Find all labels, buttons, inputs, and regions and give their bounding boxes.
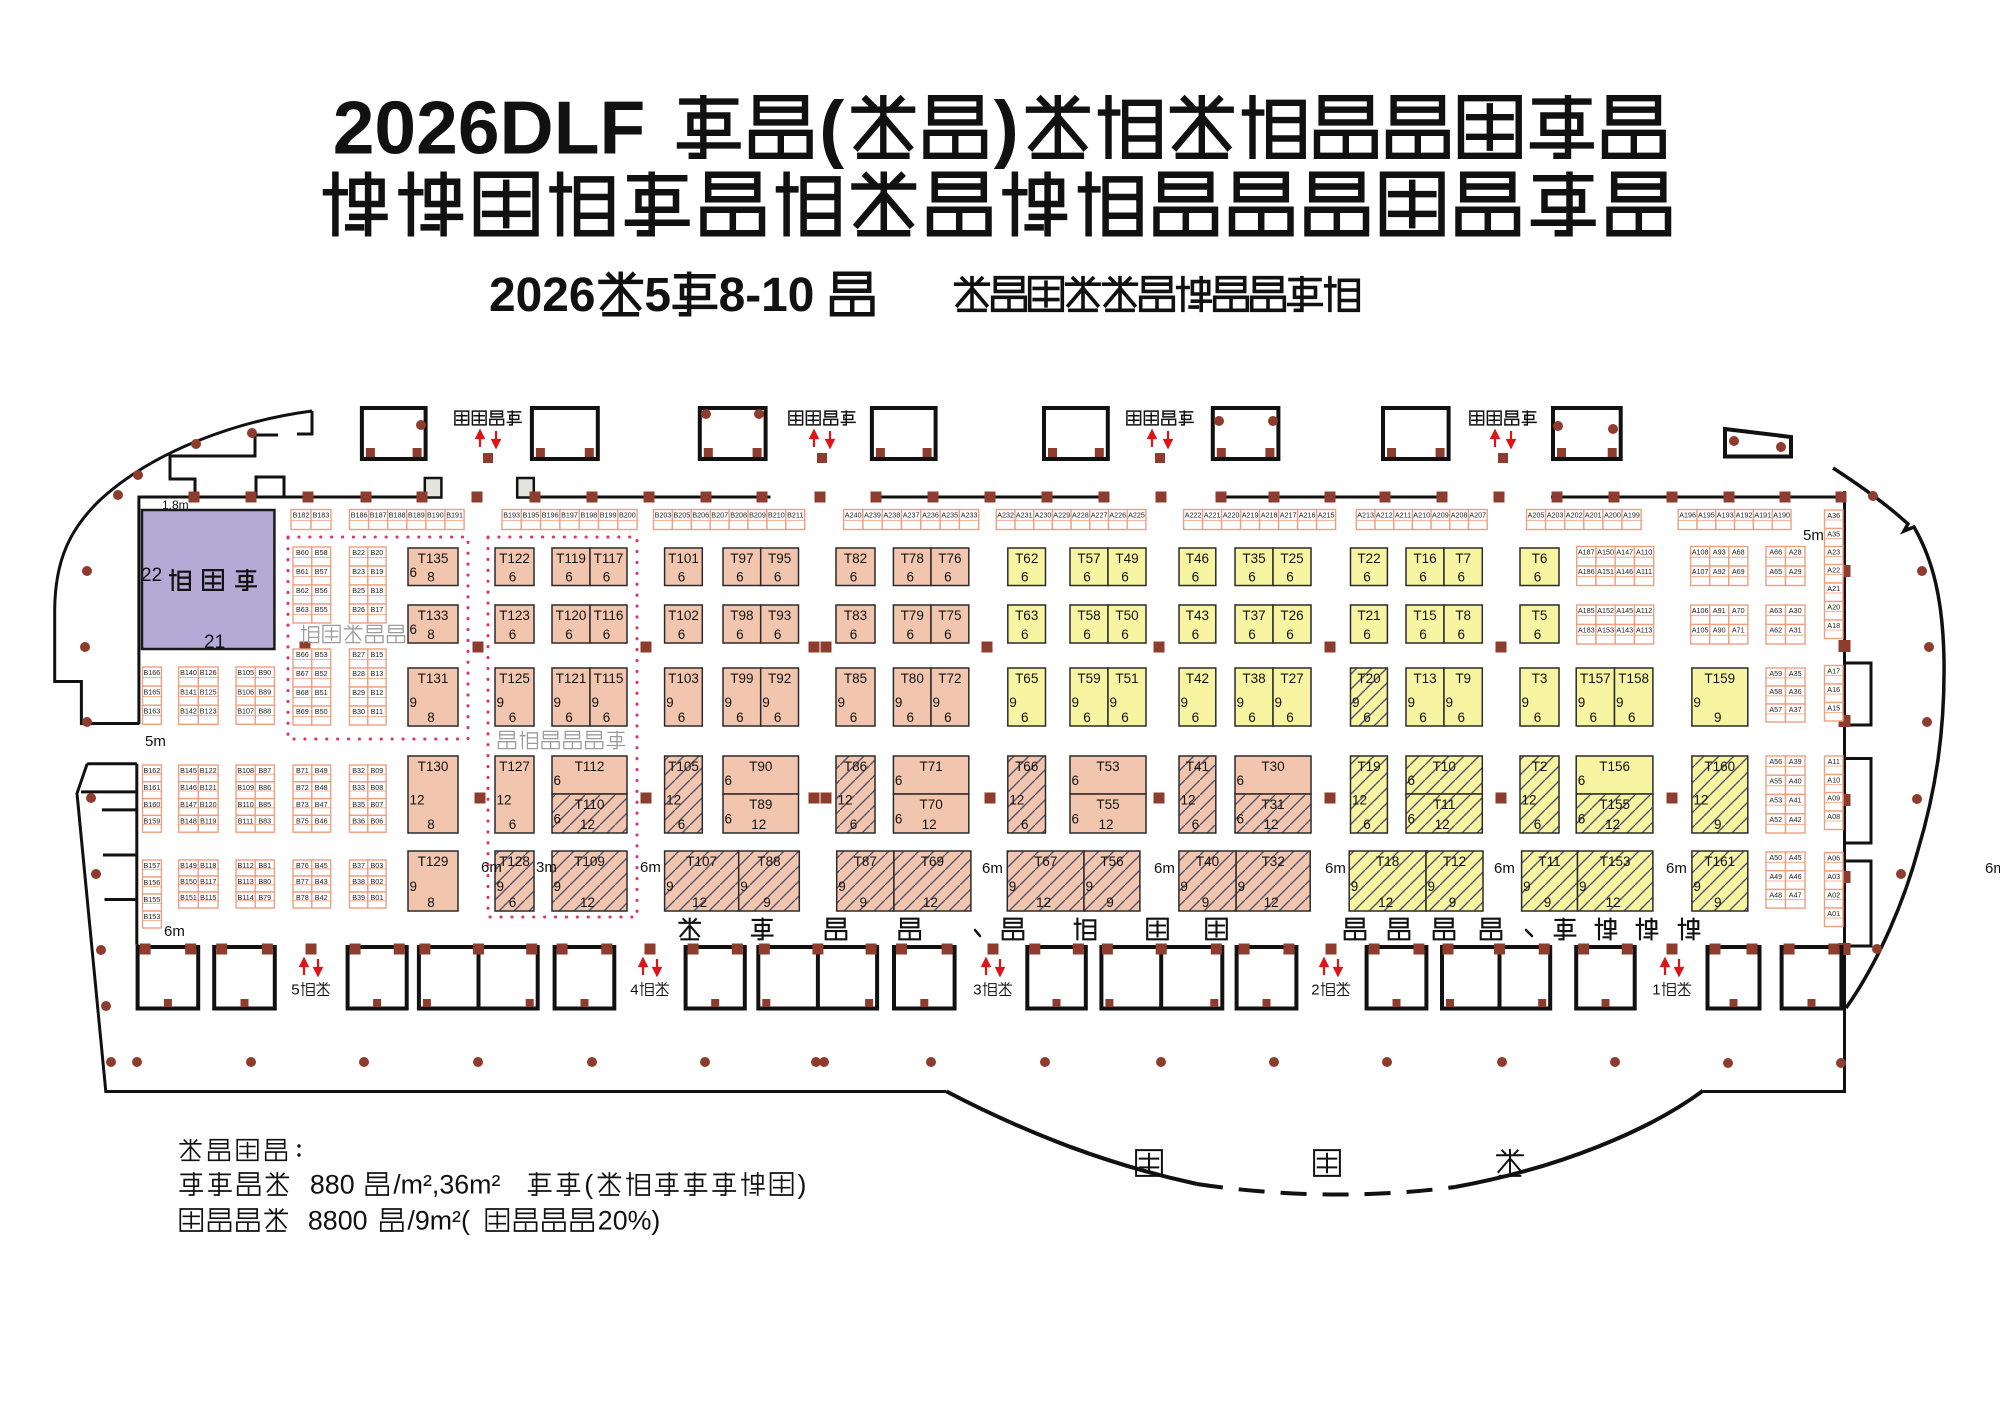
svg-text:B80: B80 xyxy=(258,877,271,886)
svg-text:6: 6 xyxy=(1363,627,1371,642)
svg-text:B108: B108 xyxy=(237,766,254,775)
svg-text:A220: A220 xyxy=(1223,511,1240,520)
svg-text:9: 9 xyxy=(1714,895,1722,910)
svg-text:T120: T120 xyxy=(556,608,587,623)
svg-text:9: 9 xyxy=(1009,879,1017,894)
svg-text:6: 6 xyxy=(1248,710,1256,725)
svg-text:B87: B87 xyxy=(258,766,271,775)
svg-text:A58: A58 xyxy=(1769,687,1782,696)
svg-text:6: 6 xyxy=(509,710,517,725)
svg-text:6: 6 xyxy=(565,570,573,585)
svg-text:B123: B123 xyxy=(200,706,217,715)
svg-text:A28: A28 xyxy=(1789,548,1802,557)
svg-text:B203: B203 xyxy=(655,511,672,520)
svg-text:6m: 6m xyxy=(1325,860,1346,877)
svg-text:12: 12 xyxy=(580,895,595,910)
svg-text:12: 12 xyxy=(1606,895,1621,910)
svg-text:B28: B28 xyxy=(352,669,365,678)
svg-text:B57: B57 xyxy=(315,567,328,576)
svg-text:A193: A193 xyxy=(1717,511,1734,520)
svg-text:T123: T123 xyxy=(499,608,530,623)
svg-text:12: 12 xyxy=(1264,895,1279,910)
svg-text:B89: B89 xyxy=(258,687,271,696)
svg-text:A01: A01 xyxy=(1827,909,1840,918)
svg-text:B191: B191 xyxy=(446,511,463,520)
svg-text:B146: B146 xyxy=(180,783,197,792)
svg-text:A11: A11 xyxy=(1828,757,1840,766)
svg-text:B86: B86 xyxy=(258,783,271,792)
svg-text:B46: B46 xyxy=(315,817,328,826)
svg-text:B121: B121 xyxy=(200,783,217,792)
svg-text:T98: T98 xyxy=(730,608,753,623)
svg-text:T50: T50 xyxy=(1115,608,1138,623)
svg-text:A113: A113 xyxy=(1636,626,1652,635)
svg-text:A226: A226 xyxy=(1109,511,1126,520)
svg-text:B166: B166 xyxy=(144,668,161,677)
svg-text:B207: B207 xyxy=(711,511,728,520)
svg-text:A145: A145 xyxy=(1616,606,1633,615)
svg-text:B117: B117 xyxy=(200,877,216,886)
svg-text:A90: A90 xyxy=(1713,626,1726,635)
svg-text:B120: B120 xyxy=(200,800,217,809)
svg-text:A147: A147 xyxy=(1616,548,1633,557)
svg-text:12: 12 xyxy=(838,793,853,808)
svg-text:A36: A36 xyxy=(1789,687,1802,696)
svg-text:6: 6 xyxy=(1083,627,1091,642)
svg-text:B20: B20 xyxy=(371,548,384,557)
svg-text:8: 8 xyxy=(427,895,435,910)
svg-text:9: 9 xyxy=(838,879,846,894)
svg-text:4: 4 xyxy=(630,981,638,998)
svg-text:6: 6 xyxy=(906,710,914,725)
svg-text:B58: B58 xyxy=(315,548,328,557)
svg-text:B43: B43 xyxy=(315,877,328,886)
svg-text:A59: A59 xyxy=(1769,669,1782,678)
svg-text:T6: T6 xyxy=(1532,551,1548,566)
svg-text:B155: B155 xyxy=(144,895,161,904)
svg-text:T16: T16 xyxy=(1413,551,1436,566)
svg-text:B61: B61 xyxy=(296,567,309,576)
svg-text:6: 6 xyxy=(1534,710,1542,725)
svg-text:B29: B29 xyxy=(352,688,365,697)
svg-text:A143: A143 xyxy=(1616,626,1633,635)
svg-text:T49: T49 xyxy=(1115,551,1138,566)
svg-text:9: 9 xyxy=(1180,879,1188,894)
svg-text:T2: T2 xyxy=(1532,759,1548,774)
svg-text:B119: B119 xyxy=(200,817,216,826)
svg-text:B76: B76 xyxy=(296,861,309,870)
svg-text:B06: B06 xyxy=(371,817,384,826)
svg-text:9: 9 xyxy=(554,879,562,894)
svg-text:A236: A236 xyxy=(922,511,939,520)
svg-text:8: 8 xyxy=(427,817,435,832)
svg-text:T51: T51 xyxy=(1115,671,1138,686)
svg-text:6: 6 xyxy=(1192,570,1200,585)
svg-text:6: 6 xyxy=(736,627,744,642)
svg-text:A45: A45 xyxy=(1789,853,1802,862)
svg-text:T86: T86 xyxy=(844,759,867,774)
svg-text:12: 12 xyxy=(923,895,938,910)
svg-text:B32: B32 xyxy=(352,766,365,775)
svg-text:A218: A218 xyxy=(1261,511,1278,520)
svg-text:6: 6 xyxy=(1192,817,1200,832)
svg-text:9: 9 xyxy=(1693,879,1701,894)
svg-text:6: 6 xyxy=(1419,627,1427,642)
svg-text:A216: A216 xyxy=(1299,511,1316,520)
svg-text:A203: A203 xyxy=(1547,511,1564,520)
svg-text:6m: 6m xyxy=(1494,860,1515,877)
svg-text:T90: T90 xyxy=(749,759,772,774)
svg-text:B42: B42 xyxy=(315,893,328,902)
svg-text:T13: T13 xyxy=(1413,671,1436,686)
svg-text:A186: A186 xyxy=(1578,567,1595,576)
svg-text:12: 12 xyxy=(1693,793,1708,808)
svg-text:B114: B114 xyxy=(237,893,253,902)
svg-text:9: 9 xyxy=(1579,879,1587,894)
svg-text:B15: B15 xyxy=(371,650,384,659)
svg-text:A146: A146 xyxy=(1616,567,1633,576)
svg-text:A227: A227 xyxy=(1091,511,1108,520)
svg-text:B151: B151 xyxy=(180,893,197,902)
svg-text:B198: B198 xyxy=(581,511,598,520)
svg-text:A48: A48 xyxy=(1769,891,1782,900)
svg-text:B162: B162 xyxy=(144,766,161,775)
svg-text:A231: A231 xyxy=(1016,511,1033,520)
svg-text:A212: A212 xyxy=(1376,511,1393,520)
svg-text:9: 9 xyxy=(762,695,770,710)
svg-text:B148: B148 xyxy=(180,817,197,826)
svg-text:B25: B25 xyxy=(352,586,365,595)
svg-text:B196: B196 xyxy=(542,511,559,520)
svg-text:T156: T156 xyxy=(1599,759,1630,774)
svg-text:6: 6 xyxy=(509,817,517,832)
svg-text:6: 6 xyxy=(1419,710,1427,725)
svg-text:8: 8 xyxy=(427,570,435,585)
svg-text:6: 6 xyxy=(1021,570,1029,585)
svg-text:12: 12 xyxy=(751,817,766,832)
svg-text:A202: A202 xyxy=(1566,511,1583,520)
svg-text:B48: B48 xyxy=(315,783,328,792)
svg-text:T88: T88 xyxy=(757,854,780,869)
svg-text:A110: A110 xyxy=(1636,548,1652,557)
svg-text:B56: B56 xyxy=(315,586,328,595)
svg-text:6: 6 xyxy=(725,812,733,827)
svg-text:B122: B122 xyxy=(200,766,217,775)
svg-text:A108: A108 xyxy=(1692,548,1709,557)
svg-text:1: 1 xyxy=(1652,981,1660,998)
svg-text:A56: A56 xyxy=(1769,757,1782,766)
svg-text:B85: B85 xyxy=(258,800,271,809)
svg-text:12: 12 xyxy=(1181,793,1196,808)
svg-text:B211: B211 xyxy=(787,511,803,520)
svg-text:A201: A201 xyxy=(1585,511,1602,520)
svg-text:6m: 6m xyxy=(1154,860,1175,877)
svg-text:T95: T95 xyxy=(768,551,791,566)
svg-text:6: 6 xyxy=(1363,817,1371,832)
svg-text:A192: A192 xyxy=(1736,511,1753,520)
svg-text:B90: B90 xyxy=(258,668,271,677)
svg-text:T30: T30 xyxy=(1261,759,1284,774)
svg-text:9: 9 xyxy=(410,879,418,894)
svg-text:B77: B77 xyxy=(296,877,309,886)
svg-text:B52: B52 xyxy=(315,669,328,678)
svg-text:6: 6 xyxy=(1534,817,1542,832)
svg-text:6: 6 xyxy=(944,570,952,585)
svg-text:A217: A217 xyxy=(1280,511,1297,520)
svg-text:6: 6 xyxy=(1286,570,1294,585)
svg-text:B17: B17 xyxy=(371,605,384,614)
svg-text:22: 22 xyxy=(141,565,162,586)
svg-text:12: 12 xyxy=(1435,817,1450,832)
svg-text:T89: T89 xyxy=(749,797,772,812)
svg-text:B160: B160 xyxy=(144,800,161,809)
svg-text:A08: A08 xyxy=(1827,812,1840,821)
svg-text:B200: B200 xyxy=(619,511,636,520)
svg-text:B188: B188 xyxy=(389,511,406,520)
svg-text:A66: A66 xyxy=(1769,548,1782,557)
svg-text:6m: 6m xyxy=(481,859,502,876)
svg-text:6: 6 xyxy=(603,570,611,585)
svg-text:9: 9 xyxy=(725,695,733,710)
svg-text:9: 9 xyxy=(1408,695,1416,710)
svg-text:B35: B35 xyxy=(352,800,365,809)
svg-text:T153: T153 xyxy=(1600,854,1631,869)
svg-text:B118: B118 xyxy=(200,861,216,870)
svg-text:A70: A70 xyxy=(1732,606,1745,615)
svg-text:A55: A55 xyxy=(1769,777,1782,786)
svg-text:B81: B81 xyxy=(258,861,271,870)
svg-text:9: 9 xyxy=(1086,879,1094,894)
svg-text:9: 9 xyxy=(1544,895,1552,910)
svg-text:): ) xyxy=(994,86,1019,170)
svg-text:T112: T112 xyxy=(575,759,605,774)
svg-text:T55: T55 xyxy=(1096,797,1119,812)
svg-text:T5: T5 xyxy=(1532,608,1548,623)
svg-text:A235: A235 xyxy=(941,511,958,520)
svg-text:6: 6 xyxy=(895,812,903,827)
svg-text:T31: T31 xyxy=(1261,797,1284,812)
svg-text:6m: 6m xyxy=(640,859,661,876)
svg-text:T161: T161 xyxy=(1704,854,1735,869)
svg-text:20%): 20%) xyxy=(598,1206,661,1236)
svg-text:B63: B63 xyxy=(296,605,309,614)
svg-text:A16: A16 xyxy=(1827,685,1840,694)
svg-text:6: 6 xyxy=(1286,627,1294,642)
svg-text:6: 6 xyxy=(1590,710,1598,725)
svg-text:A57: A57 xyxy=(1769,705,1782,714)
svg-text:6: 6 xyxy=(1578,773,1586,788)
svg-text:6: 6 xyxy=(1072,812,1080,827)
svg-text:B13: B13 xyxy=(371,669,384,678)
svg-text:B09: B09 xyxy=(371,766,384,775)
svg-text:T57: T57 xyxy=(1077,551,1100,566)
svg-text:A15: A15 xyxy=(1827,704,1840,713)
svg-text:B02: B02 xyxy=(371,877,384,886)
svg-text:6: 6 xyxy=(774,627,782,642)
svg-text:5: 5 xyxy=(644,269,671,322)
svg-text:1.8m: 1.8m xyxy=(162,498,189,512)
svg-text:A190: A190 xyxy=(1773,511,1790,520)
svg-text:880: 880 xyxy=(310,1170,355,1200)
svg-text:6: 6 xyxy=(1083,570,1091,585)
svg-text:T38: T38 xyxy=(1242,671,1265,686)
svg-text:B141: B141 xyxy=(180,687,197,696)
svg-text:12: 12 xyxy=(1098,817,1113,832)
svg-text:B11: B11 xyxy=(371,707,383,716)
svg-text:6: 6 xyxy=(906,570,914,585)
svg-text:12: 12 xyxy=(692,895,707,910)
svg-text:12: 12 xyxy=(922,817,937,832)
svg-text:6: 6 xyxy=(1578,812,1586,827)
svg-text:B193: B193 xyxy=(503,511,520,520)
svg-text:T85: T85 xyxy=(844,671,867,686)
svg-text:8800: 8800 xyxy=(308,1206,368,1236)
svg-text:6: 6 xyxy=(1121,710,1129,725)
svg-text:B12: B12 xyxy=(371,688,384,697)
svg-text:B115: B115 xyxy=(200,893,216,902)
svg-text:9: 9 xyxy=(1616,695,1624,710)
svg-text:9: 9 xyxy=(1181,695,1189,710)
svg-text:9: 9 xyxy=(1351,879,1359,894)
svg-text:B49: B49 xyxy=(315,766,328,775)
svg-text:B27: B27 xyxy=(352,650,365,659)
svg-text:B157: B157 xyxy=(144,861,161,870)
svg-text:B45: B45 xyxy=(315,861,328,870)
svg-text:B18: B18 xyxy=(371,586,384,595)
svg-text:T32: T32 xyxy=(1262,854,1285,869)
svg-text:B78: B78 xyxy=(296,893,309,902)
svg-text:A233: A233 xyxy=(961,511,978,520)
svg-text:A10: A10 xyxy=(1827,776,1840,785)
svg-text:6: 6 xyxy=(850,570,858,585)
svg-text:A37: A37 xyxy=(1789,705,1802,714)
svg-text:T130: T130 xyxy=(418,759,449,774)
svg-text:T12: T12 xyxy=(1443,854,1466,869)
svg-text:T109: T109 xyxy=(574,854,605,869)
svg-text:A06: A06 xyxy=(1827,854,1840,863)
svg-text:9: 9 xyxy=(1428,879,1436,894)
svg-text:B110: B110 xyxy=(237,800,253,809)
svg-text:B163: B163 xyxy=(144,706,161,715)
svg-text:T160: T160 xyxy=(1704,759,1735,774)
svg-text:B47: B47 xyxy=(315,800,328,809)
svg-text:B149: B149 xyxy=(180,861,197,870)
svg-text:B19: B19 xyxy=(371,567,384,576)
svg-text:B156: B156 xyxy=(144,878,161,887)
svg-text:A53: A53 xyxy=(1769,796,1782,805)
svg-text:T9: T9 xyxy=(1455,671,1471,686)
svg-text:A39: A39 xyxy=(1789,757,1802,766)
svg-text:A229: A229 xyxy=(1053,511,1070,520)
svg-text:T75: T75 xyxy=(938,608,961,623)
svg-text:9: 9 xyxy=(1110,695,1118,710)
svg-text:6: 6 xyxy=(1192,627,1200,642)
svg-text:A111: A111 xyxy=(1636,567,1652,576)
svg-text:B161: B161 xyxy=(144,783,161,792)
svg-text:9: 9 xyxy=(933,695,941,710)
svg-text:6: 6 xyxy=(1237,812,1245,827)
svg-text:A238: A238 xyxy=(884,511,901,520)
svg-text:T79: T79 xyxy=(901,608,924,623)
svg-text:T158: T158 xyxy=(1618,671,1649,686)
svg-text:A222: A222 xyxy=(1185,511,1202,520)
svg-text:T43: T43 xyxy=(1186,608,1209,623)
svg-text:(: ( xyxy=(819,86,844,170)
svg-text:T56: T56 xyxy=(1100,854,1123,869)
svg-text:B165: B165 xyxy=(144,687,161,696)
svg-text:6: 6 xyxy=(1248,570,1256,585)
svg-text:A228: A228 xyxy=(1072,511,1089,520)
svg-text:6: 6 xyxy=(554,773,562,788)
svg-text:6: 6 xyxy=(1021,627,1029,642)
svg-text:T99: T99 xyxy=(730,671,753,686)
svg-text:B50: B50 xyxy=(315,707,328,716)
svg-text:B71: B71 xyxy=(296,766,309,775)
svg-text:B189: B189 xyxy=(408,511,425,520)
svg-text:A03: A03 xyxy=(1827,872,1840,881)
svg-text:T103: T103 xyxy=(668,671,699,686)
svg-text:T7: T7 xyxy=(1455,551,1471,566)
svg-text:T110: T110 xyxy=(575,797,605,812)
svg-text:2: 2 xyxy=(1311,981,1319,998)
svg-text:T128: T128 xyxy=(499,854,530,869)
svg-text:A211: A211 xyxy=(1395,511,1411,520)
svg-text:A49: A49 xyxy=(1769,872,1782,881)
svg-text:B55: B55 xyxy=(315,605,328,614)
svg-text:A187: A187 xyxy=(1578,548,1595,557)
svg-text:B147: B147 xyxy=(180,800,197,809)
svg-text:A219: A219 xyxy=(1242,511,1259,520)
svg-text:9: 9 xyxy=(860,895,868,910)
svg-text:6: 6 xyxy=(603,627,611,642)
svg-text:T159: T159 xyxy=(1704,671,1735,686)
svg-text:B53: B53 xyxy=(315,650,328,659)
svg-text:B111: B111 xyxy=(238,817,254,826)
svg-text:6: 6 xyxy=(906,627,914,642)
svg-text:9: 9 xyxy=(1523,879,1531,894)
svg-text:9: 9 xyxy=(895,695,903,710)
svg-text:): ) xyxy=(798,1170,807,1200)
svg-text:T107: T107 xyxy=(686,854,717,869)
svg-text:B69: B69 xyxy=(296,707,309,716)
svg-text:T27: T27 xyxy=(1280,671,1303,686)
svg-text:9: 9 xyxy=(1578,695,1586,710)
svg-text:9: 9 xyxy=(497,879,505,894)
svg-text:6: 6 xyxy=(1237,773,1245,788)
svg-text:9: 9 xyxy=(1522,695,1530,710)
svg-text:6: 6 xyxy=(895,773,903,788)
svg-text:A107: A107 xyxy=(1692,567,1709,576)
svg-text:T42: T42 xyxy=(1186,671,1209,686)
svg-text:12: 12 xyxy=(666,793,681,808)
svg-text:T71: T71 xyxy=(919,759,942,774)
svg-text:B75: B75 xyxy=(296,817,309,826)
svg-text:B72: B72 xyxy=(296,783,309,792)
svg-text:T18: T18 xyxy=(1376,854,1399,869)
svg-text:B187: B187 xyxy=(370,511,387,520)
svg-text:A50: A50 xyxy=(1769,853,1782,862)
svg-text:A207: A207 xyxy=(1469,511,1486,520)
svg-text:B03: B03 xyxy=(371,861,384,870)
svg-text:B73: B73 xyxy=(296,800,309,809)
svg-text:T35: T35 xyxy=(1242,551,1265,566)
svg-text:6: 6 xyxy=(603,710,611,725)
svg-text:B60: B60 xyxy=(296,548,309,557)
svg-text:6: 6 xyxy=(1457,710,1465,725)
svg-text:B01: B01 xyxy=(371,893,384,902)
svg-text:6: 6 xyxy=(1457,627,1465,642)
svg-text:B153: B153 xyxy=(144,912,161,921)
